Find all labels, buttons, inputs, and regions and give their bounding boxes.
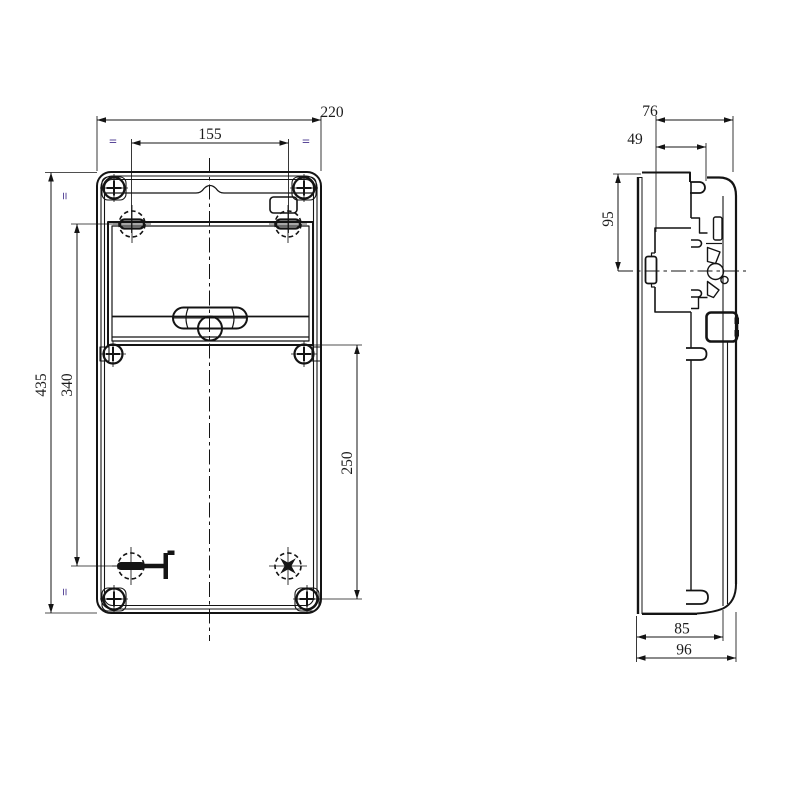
dim-label-96: 96 [676,642,692,659]
side-view [618,173,746,615]
mid-tab [686,348,707,360]
latch-button-block [707,313,738,342]
back-plate [637,177,642,614]
dim-label-220: 220 [320,104,344,121]
clip-spring-tab [646,257,657,284]
mounting-hole-bottom-right [269,547,307,585]
knockout-rect [270,197,297,213]
technical-drawing: 220 155 = = 435 340 = = [0,0,800,800]
dim-label-95: 95 [600,211,617,227]
window-frame-outer [108,222,313,345]
top-tab [690,182,705,193]
equal-mark-top-right: = [302,135,310,150]
dim-label-49: 49 [627,131,643,148]
din-rail-clip [646,228,702,312]
mounting-hole-top-right [269,205,307,243]
latch-pivot-post [714,217,723,240]
cover-bottom-curve [697,584,736,614]
front-view [97,158,321,641]
dim-label-76: 76 [642,103,658,120]
dim-label-250: 250 [339,451,356,475]
dim-label-435: 435 [33,373,50,397]
window-frame-inner [112,226,309,341]
dim-95: 95 [600,174,641,271]
wall-screw-hook [168,551,175,556]
dim-label-155: 155 [198,126,222,143]
mounting-hole-bottom-left [112,547,175,585]
equal-mark-side-lower: = [56,588,71,596]
latch-mount-step-top [691,218,708,233]
body-top-edge [642,173,690,183]
dim-label-340: 340 [59,373,76,397]
dim-340: 340 = = [56,192,121,596]
dim-76: 76 [642,103,733,232]
dim-label-85: 85 [674,621,690,638]
equal-mark-top-left: = [109,135,117,150]
side-dimensions: 76 49 95 85 96 [600,103,736,662]
bottom-foot-tab [686,591,708,605]
equal-mark-side-upper: = [56,192,71,200]
wall-screw-head [164,553,169,579]
drawing-canvas: 220 155 = = 435 340 = = [0,0,800,800]
